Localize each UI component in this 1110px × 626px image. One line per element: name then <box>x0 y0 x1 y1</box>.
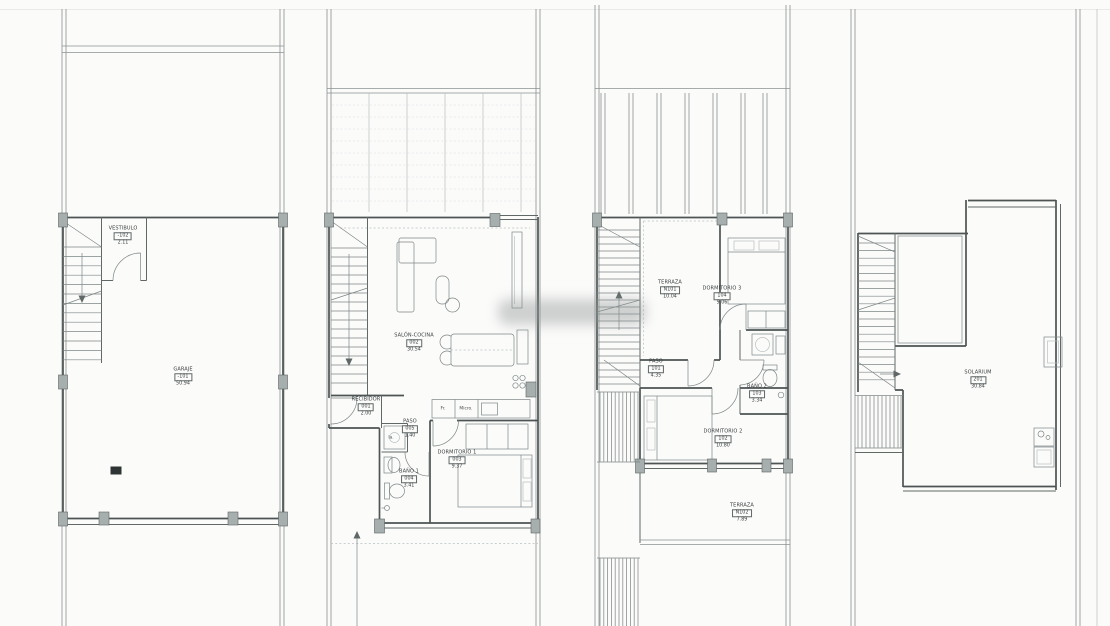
driveway-lines <box>62 46 284 53</box>
kitchen-furniture <box>432 330 536 418</box>
room-label-dormitorio-3: DORMITORIO 3 104 9.06 <box>703 285 742 306</box>
cooktop-burner <box>513 383 518 388</box>
pillar <box>59 375 68 389</box>
hatch-band-lower <box>600 558 638 626</box>
stairwell-void-parapet <box>898 236 962 343</box>
pillar <box>717 213 727 225</box>
pillar <box>325 213 334 227</box>
pillow <box>523 482 531 501</box>
hatch-band-upper <box>600 392 638 462</box>
room-label-bano-1: BAÑO 1 004 3.41 <box>399 468 419 489</box>
pillar <box>784 459 793 473</box>
room-name: DORMITORIO 2 <box>704 428 743 435</box>
exterior-walls <box>597 217 788 469</box>
room-label-paso-101: PASO 101 4.35 <box>648 358 664 379</box>
pillow <box>734 241 754 250</box>
staircase <box>331 217 368 396</box>
front-pergola <box>855 396 903 453</box>
counter-inner-line <box>1037 450 1051 464</box>
tv-cabinet <box>512 232 522 308</box>
room-name: BAÑO 1 <box>399 468 419 475</box>
staircase <box>63 217 102 363</box>
roof-fixtures <box>1034 337 1062 467</box>
exterior-walls <box>858 200 1056 490</box>
bedroom-door-swing <box>433 421 459 447</box>
toilet-tank <box>385 483 390 499</box>
plot-lines <box>62 9 284 626</box>
pillar <box>99 512 109 525</box>
pillar <box>708 459 717 472</box>
wall-pier <box>526 382 536 397</box>
room-name: PASO <box>402 418 418 425</box>
room-name: RECIBIDOR <box>352 396 381 403</box>
pillow <box>647 428 655 450</box>
door-swing <box>113 253 141 281</box>
room-label-paso-005: PASO 005 1.40 <box>402 418 418 439</box>
plan-basement-drawing <box>59 9 288 626</box>
pergola-slats <box>601 93 767 214</box>
room-label-terraza-n102: TERRAZA N102 7.89 <box>730 502 754 523</box>
floor-drain <box>778 392 784 398</box>
room-code: 004 <box>401 475 417 483</box>
sofa-chaise <box>397 242 414 312</box>
room-code: 101 <box>648 365 664 373</box>
room-area: 9.06 <box>703 301 742 307</box>
sink-tap <box>1046 436 1050 440</box>
room-code: 005 <box>402 425 418 433</box>
kitchen-counter <box>432 400 530 419</box>
side-pergola-hatches <box>597 392 640 626</box>
room-code: 001 <box>358 403 374 411</box>
pillar <box>228 512 238 525</box>
room-label-salon-cocina: SALÓN-COCINA 002 30.54 <box>394 332 434 353</box>
washer-drum <box>756 338 770 352</box>
equipment-label-microwave: Micro. <box>459 407 472 412</box>
cooktop-burner <box>520 375 525 380</box>
wardrobe <box>748 311 785 328</box>
exterior-walls <box>329 217 538 528</box>
room-label-vestibulo: VESTIBULO -102 2.11 <box>109 225 138 246</box>
pillar <box>784 213 793 227</box>
bathroom-door-swing <box>740 360 764 385</box>
room-code: N102 <box>732 509 752 517</box>
room-name: GARAJE <box>173 366 192 373</box>
paving-grid-vertical <box>369 93 521 212</box>
equipment-label-fridge: Fr. <box>440 407 445 412</box>
summer-kitchen-sink-unit <box>1034 428 1054 446</box>
room-label-recibidor: RECIBIDOR 001 2.00 <box>352 396 381 417</box>
room-area: 9.37 <box>438 465 477 471</box>
bedroom2-door-swing <box>712 388 738 414</box>
front-yard-edge <box>327 89 540 94</box>
room-name: DORMITORIO 3 <box>703 285 742 292</box>
room-label-dormitorio-1: DORMITORIO 1 003 9.37 <box>438 449 477 470</box>
room-area: 3.41 <box>399 484 419 490</box>
plan-roof-drawing <box>851 9 1097 626</box>
room-code: -101 <box>174 373 192 381</box>
counter-right <box>517 330 528 364</box>
room-code: N101 <box>660 286 680 294</box>
bedroom3-door-swing <box>720 304 746 330</box>
paving-grid-horizontal <box>332 105 535 201</box>
armchair <box>436 276 449 304</box>
pillar <box>636 459 645 473</box>
room-label-terraza-n101: TERRAZA N101 10.04 <box>658 279 682 300</box>
watermark <box>498 299 646 325</box>
room-name: PASO <box>648 358 664 365</box>
terrace-door-swing <box>688 360 714 386</box>
pillow <box>523 459 531 478</box>
room-area: 30.54 <box>394 348 434 354</box>
pillow <box>759 241 779 250</box>
room-name: TERRAZA <box>730 502 754 509</box>
wardrobe-dividers <box>487 424 508 449</box>
wardrobe <box>466 424 528 449</box>
pillar <box>762 459 771 472</box>
room-area: 2.00 <box>352 412 381 418</box>
side-table <box>446 298 460 312</box>
floorplan-sheet: VESTIBULO -102 2.11 GARAJE -101 50.94 RE… <box>0 0 1110 626</box>
sink <box>482 403 498 415</box>
terrace-bottom-edge <box>640 540 790 545</box>
bedroom3 <box>720 238 788 330</box>
stair-break-lines <box>858 236 895 388</box>
pillar <box>593 213 602 227</box>
structural-pillars <box>325 213 541 533</box>
chimney-skylight-box <box>1044 337 1062 367</box>
cooktop-burner <box>513 375 518 380</box>
equipment-label-washer: la. <box>388 436 393 441</box>
room-area: 10.04 <box>658 295 682 301</box>
room-area: 10.80 <box>704 444 743 450</box>
rear-yard-arrowhead <box>354 531 361 539</box>
room-label-solarium: SOLARIUM 201 30.84 <box>964 369 991 390</box>
room-label-dormitorio-2: DORMITORIO 2 102 10.80 <box>704 428 743 449</box>
pillar <box>375 519 385 533</box>
room-code: 201 <box>970 376 986 384</box>
room-area: 7.89 <box>730 518 754 524</box>
stair-treads <box>858 243 895 380</box>
cooktop-burner <box>520 383 525 388</box>
room-label-garaje: GARAJE -101 50.94 <box>173 366 192 387</box>
room-area: 3.34 <box>747 399 767 405</box>
room-code: 002 <box>406 339 422 347</box>
room-name: SOLARIUM <box>964 369 991 376</box>
room-name: DORMITORIO 1 <box>438 449 477 456</box>
room-label-bano-2: BAÑO 2 103 3.34 <box>747 383 767 404</box>
pillar <box>531 519 540 533</box>
pillow <box>647 400 655 422</box>
staircase <box>858 233 901 390</box>
floor-drain <box>385 506 390 511</box>
pergola-slats <box>858 396 901 448</box>
room-name: VESTIBULO <box>109 225 138 232</box>
room-area: 2.11 <box>109 241 138 247</box>
pillar <box>279 512 288 526</box>
room-code: 003 <box>449 456 465 464</box>
terrace-n102 <box>640 469 790 545</box>
room-code: 103 <box>749 390 765 398</box>
pillar <box>490 214 500 227</box>
room-name: TERRAZA <box>658 279 682 286</box>
room-name: SALÓN-COCINA <box>394 332 434 339</box>
stair-arrowhead <box>894 371 902 378</box>
room-name: BAÑO 2 <box>747 383 767 390</box>
room-area: 30.84 <box>964 385 991 391</box>
room-area: 4.35 <box>648 374 664 380</box>
room-area: 50.94 <box>173 382 192 388</box>
pillar <box>279 213 288 227</box>
pillar <box>279 375 288 389</box>
garage-equipment-box <box>111 467 122 475</box>
room-code: 104 <box>714 292 730 300</box>
pillar <box>59 512 68 526</box>
pillar <box>59 213 68 227</box>
room-area: 1.40 <box>402 434 418 440</box>
washbasin-unit <box>776 336 785 354</box>
parapet-double-lines <box>903 204 1061 491</box>
room-code: 102 <box>715 435 731 443</box>
stair-arrowhead <box>616 291 623 299</box>
room-code: -102 <box>114 232 132 240</box>
sink-basin <box>1038 431 1044 437</box>
